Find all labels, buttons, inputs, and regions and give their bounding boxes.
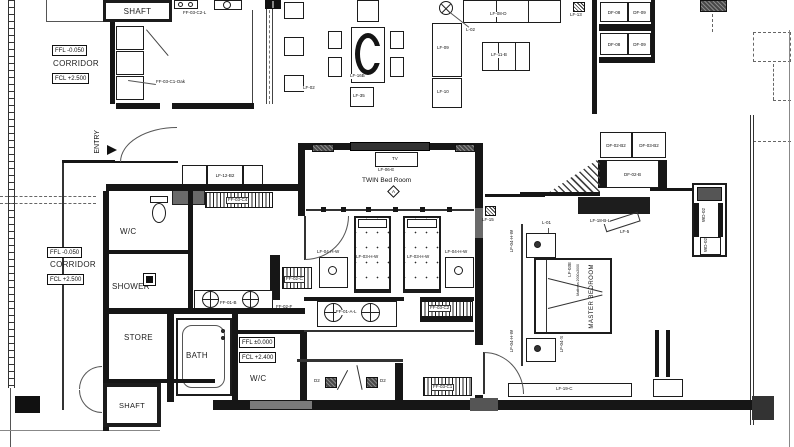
socket (420, 207, 425, 212)
tag-lf-06-e: LF-06-E (378, 168, 394, 173)
room-label-store: STORE (124, 334, 153, 343)
tag-lf-08-d: LF-08-D (490, 12, 507, 17)
room-label-wc: W/C (120, 228, 136, 237)
tag-lf-03-h-w: LF-03-H-W (356, 255, 378, 260)
headboard-panel (521, 224, 523, 366)
socket (366, 207, 371, 212)
tag-lf-04-h-w: LF-04-H-W (445, 250, 467, 255)
section-marker-letter: A (392, 189, 395, 194)
dashed-line (773, 64, 774, 100)
wall (300, 330, 307, 402)
tag-ff-03-c2: FF-03-C2 (428, 305, 451, 312)
wall-control-icon (573, 2, 585, 12)
tag-lf-15: LF-15 (482, 218, 494, 223)
room-label-corridor: CORRIDOR (50, 261, 96, 270)
tag-df-03-b2: DF-03-B2 (639, 143, 659, 148)
toilet-tank (150, 196, 168, 203)
room-label-shaft: SHAFT (124, 7, 152, 16)
tag-lf-03-h-w: LF-03-H-W (407, 255, 429, 260)
room-shaft-top: SHAFT (103, 0, 172, 22)
chair (390, 31, 404, 49)
dashed-line (712, 14, 713, 32)
corridor-line (46, 21, 104, 22)
bottom-wall-gray (250, 401, 312, 409)
wall (599, 24, 651, 31)
wall-sconce-icon (455, 144, 475, 152)
tag-lf-11-b: LF-11-B (491, 53, 507, 58)
wall (62, 160, 115, 163)
wall-sconce-icon (312, 144, 334, 152)
wall (298, 150, 305, 216)
wall (232, 314, 238, 400)
tag-ff-01-b: FF-01-B (220, 301, 237, 306)
door-swing-arc (79, 390, 102, 413)
socket (341, 207, 346, 212)
cabinet-df-08: DF-08 (600, 2, 628, 22)
wall (106, 184, 304, 191)
table-lamp-icon (328, 266, 337, 275)
tag-wd-02: WD-02 (704, 238, 709, 252)
wall (592, 0, 597, 114)
tag-l-01: L-01 (542, 221, 551, 226)
tag-lf-04-h-w: LF-04-H-W (510, 330, 515, 352)
closet-door-leaf (146, 29, 169, 56)
tag-wd-02: WD-02 (702, 208, 707, 222)
corridor-bottom-line (0, 430, 160, 431)
cooktop-burner-icon (188, 2, 193, 7)
tag-ff-01-a-l: FF-01-A-L (336, 310, 357, 315)
column-hatched (700, 0, 727, 12)
tag-df-08: DF-08 (608, 10, 621, 15)
cabinet-df-09: DF-09 (628, 33, 651, 55)
door-swing-arc (120, 127, 177, 162)
fcl-label: FCL +2.500 (52, 73, 89, 84)
tag-lf-12-b2: LF-12-B2 (216, 173, 235, 178)
tag-lf-18-b-l: LF-18-B-L (590, 219, 610, 224)
desk-side (718, 203, 723, 237)
door-leaf (356, 365, 362, 390)
cabinet-df-02-b2: DF-02-B2 (600, 132, 632, 158)
chair (328, 31, 342, 49)
table-lamp-icon (534, 345, 541, 352)
tag-lf-16b: LF-16B (350, 74, 365, 79)
wall (485, 194, 545, 197)
socket (321, 207, 326, 212)
tag-lf-10: LF-10 (437, 90, 449, 95)
hall-cabinet: LF-12-B2 (207, 165, 243, 185)
tag-df-08: DF-08 (608, 42, 621, 47)
console-dark (578, 197, 650, 214)
scale-ruler (8, 0, 15, 388)
wall (651, 0, 655, 63)
cabinet-df-09: DF-09 (628, 2, 651, 22)
tag-lf-04-s: LF-04-S (560, 336, 565, 352)
room-label-bath: BATH (186, 352, 208, 361)
entry-arrow-icon (107, 145, 117, 155)
floor-plan-sheet: FFL -0.050 CORRIDOR FCL +2.500 SHAFT FF-… (0, 0, 794, 447)
toilet-bowl-icon (152, 203, 166, 223)
room-label-wc: W/C (250, 375, 266, 384)
socket (447, 207, 452, 212)
table-lamp-icon (454, 266, 463, 275)
hall-cabinet (243, 165, 263, 185)
chair (328, 57, 342, 77)
wall-thin (304, 330, 474, 332)
door-swing-arc (79, 366, 102, 389)
tag-ff-03-c1-oak: FF-03-C1-Oak (156, 80, 185, 85)
tv-wall-rail (350, 142, 430, 151)
fcl-label: FCL +2.500 (47, 274, 84, 285)
hatched-triangle (545, 158, 600, 195)
fcl-label: FCL +2.400 (239, 352, 276, 363)
room-label-master-bedroom: MASTER BEDROOM (589, 264, 596, 329)
wall-control-icon (485, 206, 496, 216)
cabinet-df-03-b2: DF-03-B2 (632, 132, 666, 158)
tag-lf-19-c: LF-19-C (556, 387, 573, 392)
ffl-label: FFL -0.050 (47, 247, 82, 258)
wall (297, 359, 403, 362)
wall (475, 143, 483, 208)
balcony-dashed-outline (753, 32, 791, 62)
nightstand (526, 233, 556, 258)
tag-lf-09: LF-09 (437, 46, 449, 51)
chair (284, 75, 304, 92)
door-swing-arc (484, 352, 524, 394)
hall-cabinet (182, 165, 207, 185)
cabinet-side (655, 330, 659, 377)
wall (650, 188, 692, 191)
tag-lf-13: LF-13 (570, 13, 582, 18)
tag-l-02: L-02 (466, 28, 475, 33)
room-label-twin-bedroom: TWIN Bed Room (362, 177, 411, 184)
table-lamp-icon (534, 241, 541, 248)
room-label-shaft: SHAFT (119, 401, 145, 410)
ruler-tail-line (10, 388, 11, 447)
tag-df-02-b2: DF-02-B2 (606, 143, 626, 148)
room-label-entry: ENTRY (94, 130, 102, 154)
cabinet (653, 379, 683, 397)
wall (659, 160, 667, 188)
tag-ff-03-c4: FF-03-C4 (226, 197, 249, 204)
tag-lf-5: LF-5 (620, 230, 629, 235)
closet (116, 51, 144, 75)
wall (475, 238, 483, 345)
faucet-icon (221, 336, 225, 340)
unit-side-wall (62, 163, 64, 410)
wall (167, 314, 174, 402)
chair (284, 37, 304, 56)
desk-side (694, 203, 699, 237)
door-swing-arc (305, 216, 349, 260)
tag-lf-35: LF-35 (353, 94, 365, 99)
tag-lf-02: LF-02 (303, 86, 315, 91)
ffl-label: FFL ±0.000 (239, 337, 275, 348)
cabinet-side (666, 330, 670, 377)
chair (357, 0, 379, 22)
door-tag-d2: D2 (380, 379, 386, 384)
column-black (15, 396, 40, 413)
tag-tv: TV (392, 157, 398, 162)
wall (107, 308, 305, 314)
wall (238, 330, 300, 334)
closet (116, 26, 144, 50)
pillow (407, 219, 437, 228)
corridor-dashed-line (0, 203, 96, 204)
wall (109, 250, 189, 254)
bed-line (546, 260, 547, 332)
wall (395, 363, 403, 402)
pillow (358, 219, 387, 228)
sink-basin-icon (202, 291, 219, 308)
wall (172, 103, 254, 109)
glass-partition-dash (269, 0, 270, 104)
door-frame-hatched (325, 377, 337, 388)
nightstand (526, 338, 556, 362)
wall (420, 317, 473, 322)
sink-basin-icon (361, 303, 380, 322)
wall (599, 57, 651, 63)
tag-ff-02-c: FF-02-C (284, 276, 305, 283)
tag-lf-04-h-w: LF-04-H-W (510, 230, 515, 252)
tag-df-09: DF-09 (633, 10, 646, 15)
wall-gray (475, 208, 483, 238)
tag-ff-03-c2-l: FF-03-C2-L (183, 11, 206, 16)
cabinet-df-02-b: DF-02-B (606, 160, 659, 188)
wall (110, 22, 115, 104)
corridor-line (46, 0, 47, 22)
sheet-edge-line (789, 30, 790, 447)
sofa (463, 0, 561, 23)
ffl-label: FFL -0.050 (52, 45, 87, 56)
desk-top (697, 187, 722, 201)
sink-basin-icon (223, 1, 231, 9)
column (265, 0, 281, 9)
tag-df-02-b: DF-02-B (624, 172, 641, 177)
shower-drain-icon (144, 274, 155, 285)
door-tag-d2: D2 (314, 379, 320, 384)
corridor-dashed-line (0, 196, 96, 197)
room-label-corridor: CORRIDOR (53, 60, 99, 69)
kitchen-wall-line (252, 10, 253, 106)
bottom-wall-gray (470, 398, 498, 411)
cooktop-burner-icon (178, 2, 183, 7)
room-shaft-bottom: SHAFT (103, 383, 161, 427)
glass-partition (272, 0, 273, 104)
dashed-line (753, 141, 791, 142)
sink-basin-icon (242, 291, 259, 308)
socket (393, 207, 398, 212)
dining-table-gap (371, 46, 382, 63)
tag-mattress-size: Mattress 2000x2000 (577, 264, 581, 296)
tag-df-09: DF-09 (633, 42, 646, 47)
tag-ff-03-c1: FF-03-C1 (431, 384, 454, 391)
chair (390, 57, 404, 77)
door-leaf (337, 370, 348, 390)
corner-block (752, 396, 774, 420)
chair (284, 2, 304, 19)
section-marker: A (387, 185, 400, 198)
faucet-icon (221, 329, 225, 333)
tag-lf-03e: LF-03E (568, 262, 573, 277)
door-frame-hatched (366, 377, 378, 388)
right-wall (750, 115, 754, 425)
cabinet-df-08: DF-08 (600, 33, 628, 55)
wall (116, 103, 160, 109)
glass-partition (266, 0, 267, 104)
